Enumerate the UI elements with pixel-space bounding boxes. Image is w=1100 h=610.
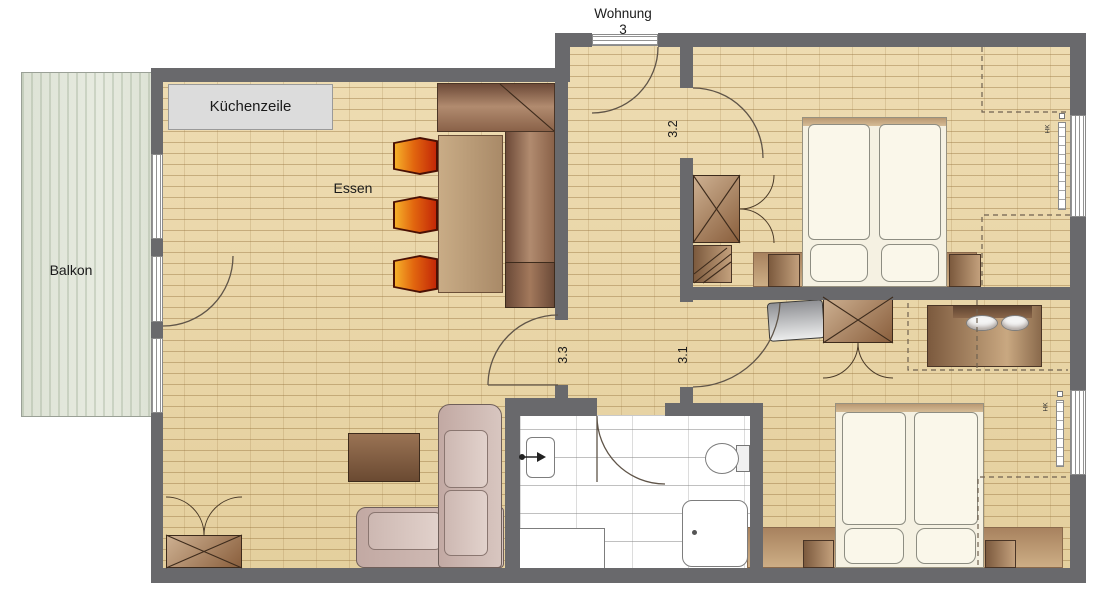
wall-living-right: [555, 82, 568, 320]
living-wardrobe: [166, 535, 242, 568]
apartment-title-line1: Wohnung: [576, 6, 670, 21]
sofa-cushion: [368, 512, 442, 550]
bedroom-upper-wardrobe: [693, 175, 740, 243]
radiator-valve: [1057, 391, 1063, 397]
bed-foot-band: [836, 404, 983, 412]
bowl: [1001, 315, 1029, 331]
chair-seat: [395, 198, 436, 232]
dining-label: Essen: [323, 180, 383, 196]
radiator-label: HK: [1043, 396, 1050, 412]
wall-corridor-a: [680, 47, 693, 88]
nightstand: [803, 540, 834, 568]
window-right-lower: [1070, 390, 1086, 475]
wall-top-left: [151, 68, 570, 82]
sofa-cushion: [444, 430, 488, 488]
room-number-bedroom-lower: 3.1: [676, 340, 690, 370]
bowl: [966, 315, 998, 331]
pillow: [916, 528, 976, 564]
wall-right-a: [1070, 47, 1086, 115]
bedroom-lower-wardrobe: [823, 297, 893, 343]
nightstand: [985, 540, 1016, 568]
wall-top-right-b: [658, 33, 1086, 47]
chair-seat: [395, 139, 436, 173]
dining-bench-top: [437, 83, 555, 132]
nightstand: [949, 254, 981, 287]
apartment-title-line2: 3: [576, 22, 670, 37]
dining-table: [438, 135, 503, 293]
toilet-bowl: [705, 443, 739, 474]
mattress: [879, 124, 941, 240]
balcony-door-threshold: [151, 256, 163, 322]
mattress: [808, 124, 870, 240]
mattress: [842, 412, 906, 525]
window-left-lower: [151, 338, 163, 413]
wall-right-b: [1070, 217, 1086, 390]
radiator-valve: [1059, 113, 1065, 119]
radiator: [1056, 400, 1064, 467]
wall-bath-left: [505, 416, 520, 568]
wall-bath-topleft: [505, 398, 597, 416]
window-left-upper: [151, 154, 163, 239]
wall-right-c: [1070, 475, 1086, 583]
wall-bottom: [151, 568, 1086, 583]
floor-plan: HK HK: [0, 0, 1100, 610]
washbasin: [526, 437, 555, 478]
wall-left-b: [151, 413, 163, 583]
pillow: [844, 528, 904, 564]
pillow: [881, 244, 939, 282]
dining-chair-2: [393, 196, 438, 234]
chair-seat: [395, 257, 436, 291]
window-right-upper: [1070, 115, 1086, 217]
room-number-bedroom-upper: 3.2: [666, 114, 680, 144]
dining-chair-3: [393, 255, 438, 293]
radiator: [1058, 122, 1066, 210]
shower-drain: [692, 530, 697, 535]
tv-set: [767, 299, 826, 342]
wall-left-a: [151, 68, 163, 154]
bedroom-upper-cabinet: [693, 245, 732, 283]
mattress: [914, 412, 978, 525]
room-number-living: 3.3: [556, 340, 570, 370]
wall-left-pier1: [151, 239, 163, 256]
wall-corridor-b: [680, 158, 693, 302]
radiator-label: HK: [1045, 118, 1052, 134]
wall-left-pier2: [151, 322, 163, 338]
kitchen-label: Küchenzeile: [168, 98, 333, 115]
balcony-label: Balkon: [31, 262, 111, 278]
wall-jog: [555, 47, 570, 82]
sofa-cushion: [444, 490, 488, 556]
balcony-deck: [21, 72, 153, 417]
dining-chair-1: [393, 137, 438, 175]
nightstand: [768, 254, 800, 287]
wall-bath-right: [750, 416, 763, 568]
coffee-table: [348, 433, 420, 482]
washing-machine: [519, 528, 605, 570]
wall-bath-topright: [665, 403, 763, 416]
wall-bedroom-divider: [680, 287, 1070, 300]
sideboard: [505, 262, 555, 308]
pillow: [810, 244, 868, 282]
